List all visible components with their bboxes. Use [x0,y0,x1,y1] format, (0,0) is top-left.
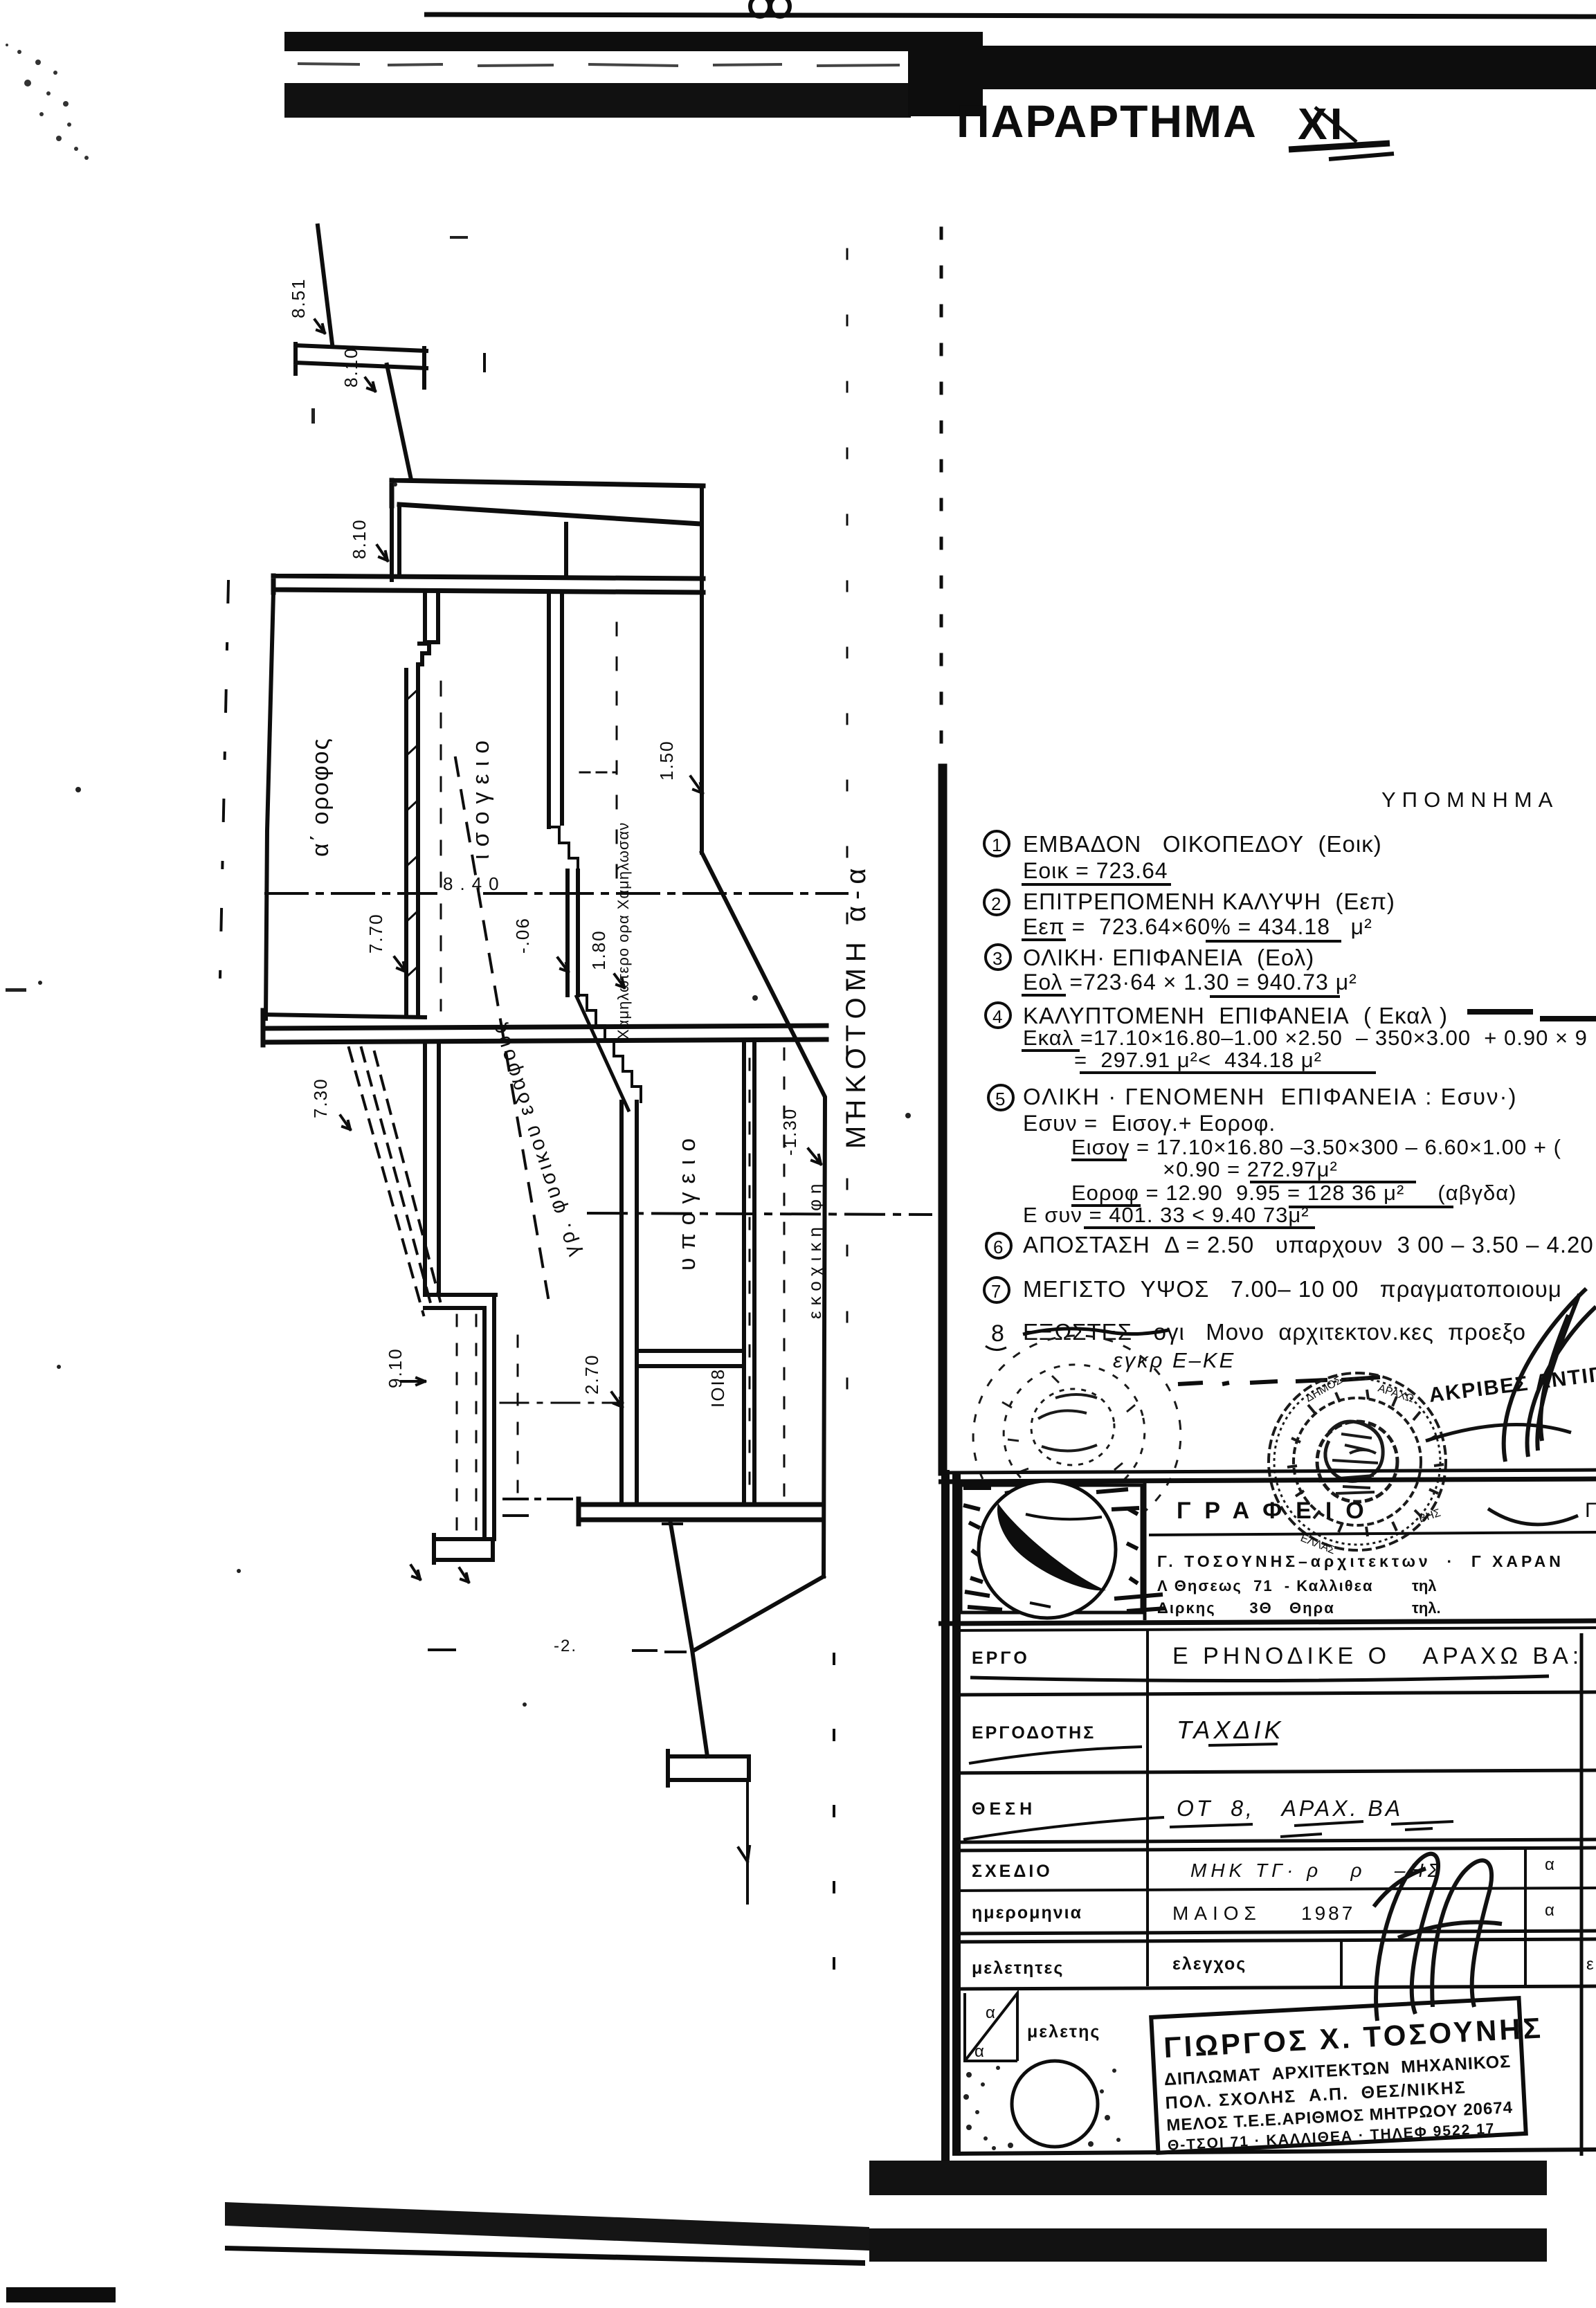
svg-text:ΣΧΕΔΙΟ: ΣΧΕΔΙΟ [972,1862,1053,1881]
svg-text:εγκρ Ε–ΚΕ: εγκρ Ε–ΚΕ [1113,1348,1235,1372]
svg-text:Π: Π [1585,1499,1596,1522]
svg-text:8.10: 8.10 [341,347,361,388]
svg-text:ΙΟΙ8: ΙΟΙ8 [707,1368,728,1408]
svg-text:ΘΕΣΗ: ΘΕΣΗ [972,1799,1036,1819]
svg-text:8.51: 8.51 [288,278,309,318]
svg-text:2.70: 2.70 [581,1354,602,1394]
svg-text:1: 1 [992,835,1002,855]
svg-text:9.10: 9.10 [385,1347,406,1388]
svg-text:8.10: 8.10 [349,518,370,559]
svg-text:Εσυν = Εισογ.+ Εοροφ.: Εσυν = Εισογ.+ Εοροφ. [1023,1111,1276,1136]
svg-text:ΜΑΙΟΣ: ΜΑΙΟΣ [1172,1902,1262,1924]
svg-text:υπογειο: υπογειο [674,1130,700,1271]
svg-text:ΥΠΟΜΝΗΜΑ: ΥΠΟΜΝΗΜΑ [1381,788,1559,812]
svg-text:ΜΗΚΟΤΟΜΗ α-α: ΜΗΚΟΤΟΜΗ α-α [841,862,871,1149]
svg-text:ΕΠΙΤΡΕΠΟΜΕΝΗ ΚΑΛΥΨΗ (Εεπ): ΕΠΙΤΡΕΠΟΜΕΝΗ ΚΑΛΥΨΗ (Εεπ) [1023,889,1395,914]
svg-text:ΟΤ 8, ΑΡΑΧ. ΒΑ: ΟΤ 8, ΑΡΑΧ. ΒΑ [1177,1796,1403,1821]
svg-text:μελετητες: μελετητες [972,1959,1064,1978]
svg-text:ημερομηνια: ημερομηνια [972,1903,1082,1923]
svg-text:Ε ΡΗΝΟΔΙΚΕ Ο ΑΡΑΧΩ ΒΑ:: Ε ΡΗΝΟΔΙΚΕ Ο ΑΡΑΧΩ ΒΑ: [1172,1643,1583,1669]
svg-text:ε: ε [1586,1955,1594,1974]
svg-text:ΟΛΙΚΗ· ΕΠΙΦΑΝΕΙΑ (Εολ): ΟΛΙΚΗ· ΕΠΙΦΑΝΕΙΑ (Εολ) [1023,945,1314,970]
svg-text:α: α [1545,1901,1554,1920]
svg-text:Διρκης 3Θ Θηρα: Διρκης 3Θ Θηρα [1157,1599,1335,1617]
svg-text:6: 6 [993,1237,1004,1257]
svg-text:Λ Θησεως 71 - Καλλιθεα: Λ Θησεως 71 - Καλλιθεα [1157,1577,1374,1594]
svg-text:8.40: 8.40 [443,873,506,894]
svg-text:-.06: -.06 [512,917,533,954]
svg-text:2: 2 [991,893,1001,914]
svg-text:ΚΑΛΥΠΤΟΜΕΝΗ ΕΠΙΦΑΝΕΙΑ ( Εκαλ: ΚΑΛΥΠΤΟΜΕΝΗ ΕΠΙΦΑΝΕΙΑ ( Εκαλ ) [1023,1003,1448,1028]
svg-text:1987: 1987 [1301,1902,1355,1924]
svg-text:7.30: 7.30 [310,1078,331,1118]
svg-text:Γ. ΤΟΣΟΥΝΗΣ–αρχιτεκτων · Γ Χ: Γ. ΤΟΣΟΥΝΗΣ–αρχιτεκτων · Γ ΧΑΡΑΝ [1157,1552,1564,1570]
svg-text:ΤΑΧΔΙΚ: ΤΑΧΔΙΚ [1177,1716,1285,1744]
svg-text:ΜΕΓΙΣΤΟ ΥΨΟΣ 7.00– 10 00: ΜΕΓΙΣΤΟ ΥΨΟΣ 7.00– 10 00 πραγματοποιουμ [1023,1276,1562,1302]
svg-text:α΄ οροφος: α΄ οροφος [307,737,334,857]
svg-text:4: 4 [992,1006,1003,1027]
svg-text:Ε συν = 401. 33 < 9.40 73μ²: Ε συν = 401. 33 < 9.40 73μ² [1023,1203,1309,1227]
svg-text:3: 3 [992,948,1003,969]
svg-text:5: 5 [995,1089,1006,1109]
svg-text:ΓΡΑΦΕΙΟ: ΓΡΑΦΕΙΟ [1177,1498,1378,1524]
svg-text:8: 8 [991,1320,1005,1347]
svg-text:×0.90 = 272.97μ²: ×0.90 = 272.97μ² [1163,1157,1338,1181]
svg-text:-1.30: -1.30 [779,1108,800,1156]
svg-text:ΕΜΒΑΔΟΝ ΟΙΚΟΠΕΔΟΥ (Εοικ): ΕΜΒΑΔΟΝ ΟΙΚΟΠΕΔΟΥ (Εοικ) [1023,831,1382,857]
svg-text:ΕΡΓΟΔΟΤΗΣ: ΕΡΓΟΔΟΤΗΣ [972,1723,1096,1743]
svg-text:Εοικ = 723.64: Εοικ = 723.64 [1023,858,1168,883]
svg-text:-2.: -2. [554,1637,577,1655]
svg-text:ΑΠΟΣΤΑΣΗ Δ = 2.50 υπαρχουν: ΑΠΟΣΤΑΣΗ Δ = 2.50 υπαρχουν 3 00 – 3.50 –… [1023,1232,1594,1257]
svg-text:εκοχικη φη: εκοχικη φη [804,1179,825,1319]
svg-text:7.70: 7.70 [365,913,386,954]
svg-text:ελεγχος: ελεγχος [1172,1954,1246,1974]
svg-text:1.50: 1.50 [656,740,677,781]
svg-text:ΠΑΡΑΡΤΗΜΑ: ΠΑΡΑΡΤΗΜΑ [956,96,1258,147]
svg-text:Εολ =723·64 × 1.30 = 940.73 μ²: Εολ =723·64 × 1.30 = 940.73 μ² [1023,970,1357,994]
svg-text:Εκαλ =17.10×16.80–1.00 ×2.50: Εκαλ =17.10×16.80–1.00 ×2.50 – 350×3.00 … [1023,1026,1588,1050]
svg-text:ΕΡΓΟ: ΕΡΓΟ [972,1648,1030,1668]
svg-text:Εισογ = 17.10×16.80 –3.50×300: Εισογ = 17.10×16.80 –3.50×300 – 6.60×1.0… [1071,1135,1561,1159]
svg-text:α: α [986,2003,995,2022]
svg-text:α: α [974,2042,984,2061]
svg-text:= 297.91 μ²< 434.18 μ²: = 297.91 μ²< 434.18 μ² [1074,1048,1322,1072]
svg-text:ΟΛΙΚΗ · ΓΕΝΟΜΕΝΗ ΕΠΙΦΑΝΕΙΑ :: ΟΛΙΚΗ · ΓΕΝΟΜΕΝΗ ΕΠΙΦΑΝΕΙΑ : Εσυν·) [1023,1084,1517,1109]
svg-text:μελετης: μελετης [1027,2022,1100,2042]
svg-text:Εοροφ = 12.90 9.95 = 128 36 μ: Εοροφ = 12.90 9.95 = 128 36 μ² (αβγδα) [1071,1181,1516,1205]
svg-text:Εεπ = 723.64×60% = 434.18 μ: Εεπ = 723.64×60% = 434.18 μ² [1023,914,1372,939]
svg-text:ΧΙ: ΧΙ [1298,99,1345,149]
svg-text:Χαμηλωτερο ορα Χαμηλωσαν: Χαμηλωτερο ορα Χαμηλωσαν [615,822,632,1039]
svg-text:α: α [1545,1855,1554,1874]
svg-text:τηλ: τηλ [1412,1577,1437,1594]
svg-text:1.80: 1.80 [588,929,609,970]
svg-text:τηλ.: τηλ. [1412,1599,1441,1617]
svg-text:ισογειο: ισογειο [468,733,494,860]
svg-text:7: 7 [991,1281,1001,1302]
